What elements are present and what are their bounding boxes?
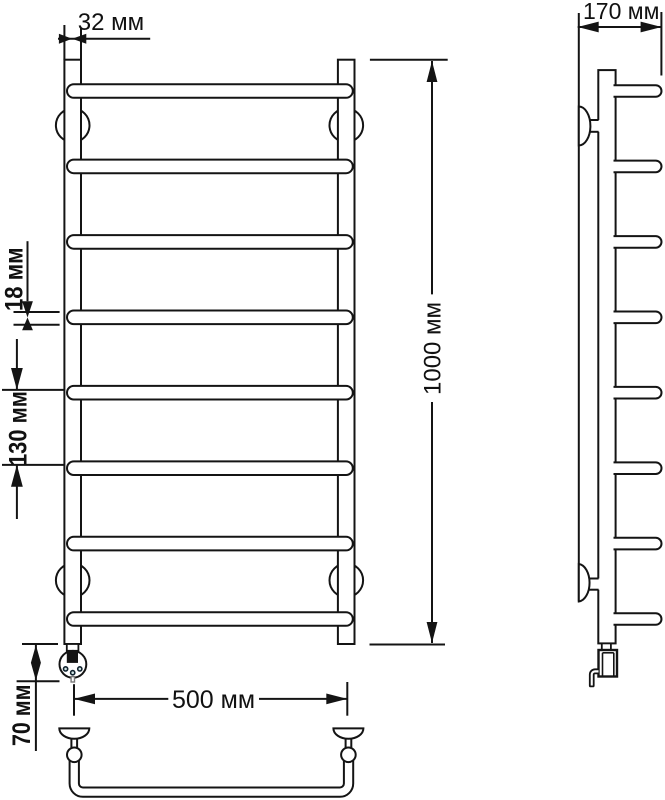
svg-text:500 мм: 500 мм [172,686,255,714]
svg-text:18 мм: 18 мм [0,248,28,312]
svg-text:1000 мм: 1000 мм [420,302,447,395]
svg-text:130 мм: 130 мм [4,391,32,466]
svg-text:32 мм: 32 мм [78,9,144,36]
svg-text:70 мм: 70 мм [8,685,36,747]
svg-text:170 мм: 170 мм [583,0,659,24]
